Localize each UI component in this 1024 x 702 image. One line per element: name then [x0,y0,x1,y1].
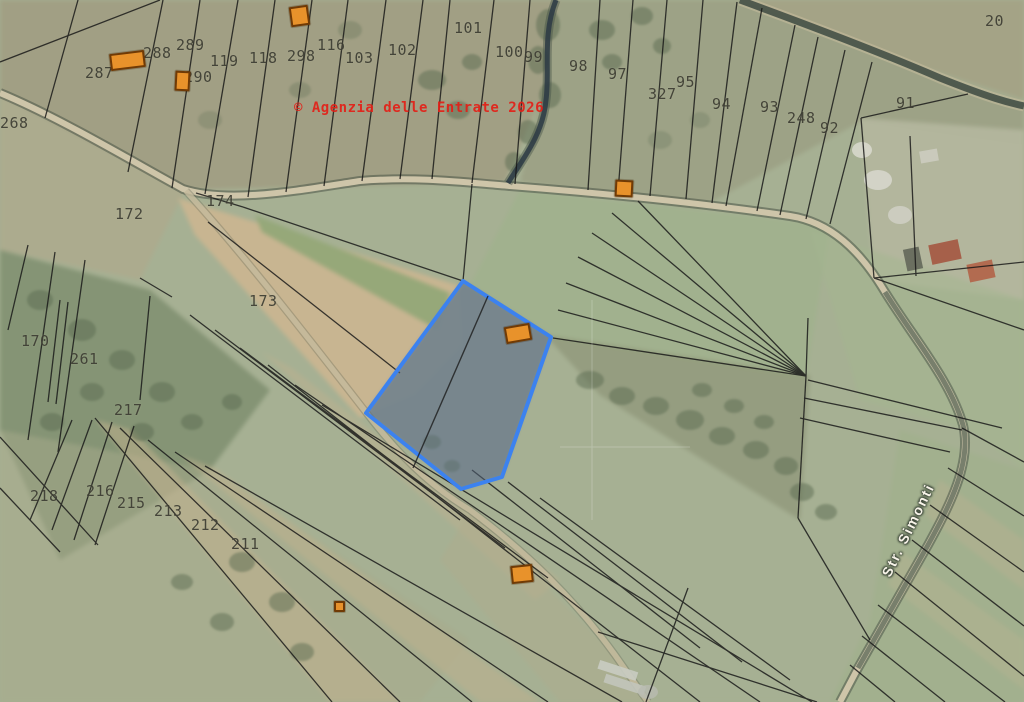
satellite-map-canvas[interactable] [0,0,1024,702]
cadastral-map-viewport: © Agenzia delle Entrate 2026 Str. Simont… [0,0,1024,702]
